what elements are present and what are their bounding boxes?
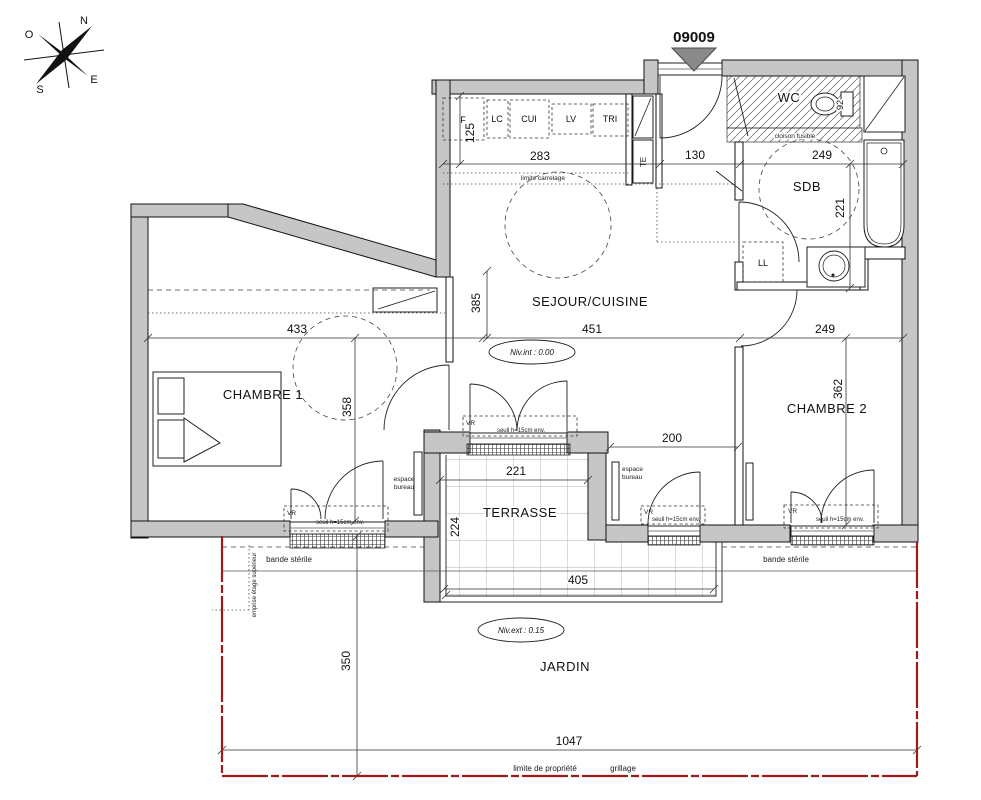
label-seuil-2: seuil h=15cm env. (497, 428, 545, 434)
dim-sejour-width: 451 (582, 322, 602, 336)
label-vr-2: VR (466, 420, 475, 427)
equipment-labels: F LC CUI LV TRI TE LL (460, 114, 768, 268)
chambre1-door (384, 365, 449, 430)
dim-sdb-depth: 221 (833, 198, 847, 218)
chambre2-french-window (791, 470, 874, 523)
dim-chambre1-width: 433 (287, 322, 307, 336)
compass-rose-icon: N O E S (24, 15, 104, 96)
technical-shaft (864, 76, 905, 132)
dim-cuisine-depth: 125 (463, 123, 477, 143)
desk-chambre2 (746, 463, 753, 520)
unit-number: 09009 (673, 29, 715, 46)
dim-jardin-depth: 350 (339, 651, 353, 671)
compass-s: S (36, 84, 43, 96)
label-seuil-3: seuil h=15cm env. (652, 517, 700, 523)
room-label-jardin: JARDIN (540, 659, 590, 674)
compass-o: O (25, 29, 34, 41)
label-te: TE (639, 157, 648, 167)
dim-chambre1-depth: 358 (340, 397, 354, 417)
sejour-french-window (470, 381, 567, 431)
dim-chambre2-depth: 362 (831, 379, 845, 399)
toilet-icon (811, 92, 853, 116)
label-grillage: grillage (610, 764, 636, 773)
washbasin-icon (807, 247, 865, 287)
radiator (373, 288, 437, 312)
label-emprise-etage: emprise étage supérieur (252, 553, 258, 618)
dim-cuisine-width: 283 (530, 149, 550, 163)
floor-plan-page: 09009 N O E S WC SDB SEJOUR/CUISINE CHAM… (0, 0, 981, 800)
label-ll: LL (758, 258, 768, 268)
label-vr-1: VR (287, 510, 296, 517)
room-label-chambre1: CHAMBRE 1 (223, 387, 303, 402)
dim-chambre2-width: 249 (815, 322, 835, 336)
room-label-sejour: SEJOUR/CUISINE (532, 294, 648, 309)
room-label-terrasse: TERRASSE (483, 505, 557, 520)
label-cloison-fusible: cloison fusible (775, 133, 816, 140)
entrance-door (660, 76, 722, 138)
label-espace-2a: espace (622, 466, 643, 473)
sdb-door (716, 171, 799, 262)
label-limite-propriete: limite de propriété (513, 764, 577, 773)
dim-terrasse-width: 405 (568, 573, 588, 587)
label-vr-4: VR (788, 508, 797, 515)
label-bande-sterile-left: bande stérile (266, 555, 312, 564)
label-tri: TRI (603, 114, 618, 124)
chambre1-french-window (291, 461, 383, 519)
label-niv-ext: Niv.ext : 0.15 (498, 626, 545, 635)
dim-hall-width: 130 (685, 148, 705, 162)
room-label-chambre2: CHAMBRE 2 (787, 401, 867, 416)
label-limite-carrelage: limite carrelage (521, 175, 565, 182)
label-seuil-4: seuil h=15cm env. (816, 517, 864, 523)
label-seuil-1: seuil h=15cm env. (316, 520, 364, 526)
label-bureau-1b: bureau (394, 484, 415, 491)
label-bande-sterile-right: bande stérile (763, 555, 809, 564)
desk-sejour (612, 462, 619, 520)
dim-sdb-width: 249 (812, 148, 832, 162)
dim-jardin-width: 1047 (556, 734, 583, 748)
turning-circle-sejour (505, 172, 611, 278)
dim-terrasse-depth: 224 (448, 517, 462, 537)
label-vr-3: VR (644, 509, 653, 516)
dim-sejour-depth: 385 (469, 293, 483, 313)
label-lc: LC (491, 114, 503, 124)
label-cui: CUI (521, 114, 537, 124)
diagonal-wall (228, 204, 450, 277)
dim-mur-chambre2: 200 (662, 431, 682, 445)
label-espace-1a: espace (394, 476, 415, 483)
bathtub-icon (864, 140, 904, 247)
label-bureau-2b: bureau (622, 474, 643, 481)
compass-n: N (80, 15, 88, 27)
room-label-wc: WC (778, 90, 801, 105)
dim-terrasse-top: 221 (506, 464, 526, 478)
compass-e: E (90, 74, 97, 86)
desk-chambre1 (414, 452, 422, 515)
floor-plan-drawing: 09009 N O E S WC SDB SEJOUR/CUISINE CHAM… (0, 0, 981, 800)
label-niv-int: Niv.int : 0.00 (510, 348, 554, 357)
label-lv: LV (566, 114, 576, 124)
dim-wc-width: 92 (835, 100, 845, 110)
room-label-sdb: SDB (793, 179, 821, 194)
